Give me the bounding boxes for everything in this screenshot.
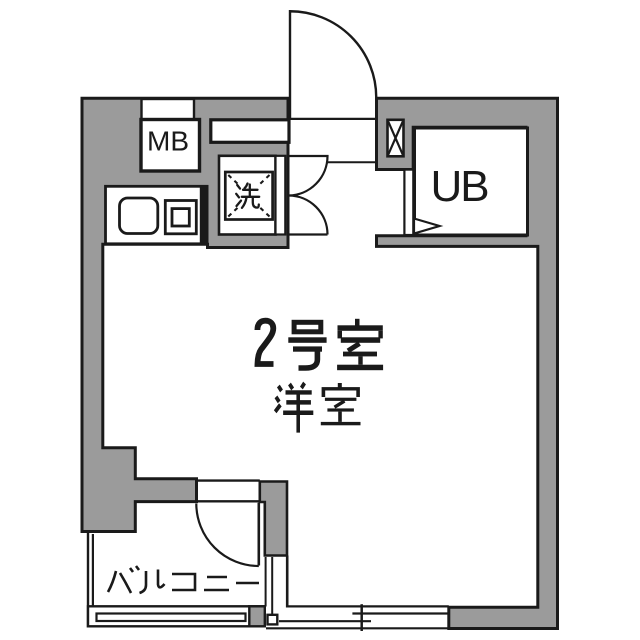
svg-text:MB: MB [147, 126, 189, 157]
svg-text:UB: UB [430, 162, 488, 211]
